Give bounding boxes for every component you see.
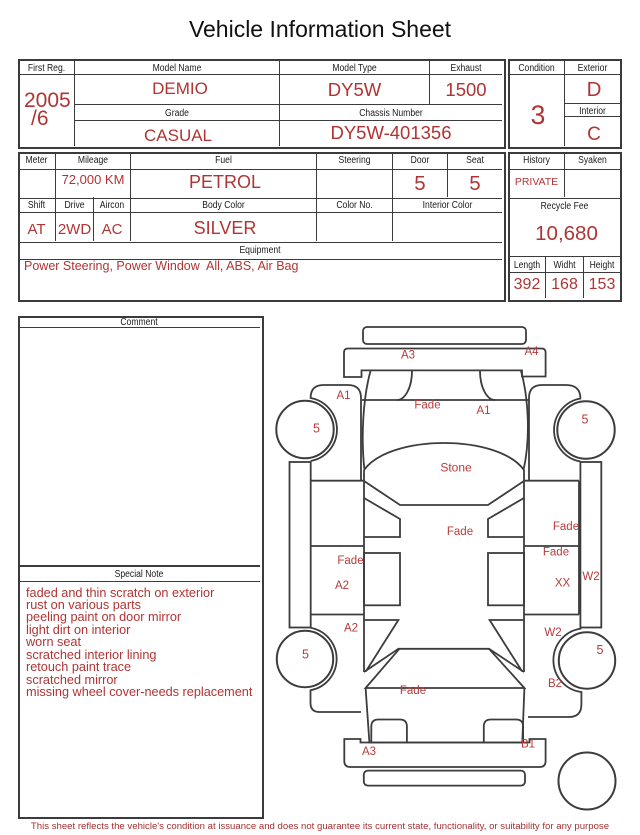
- svg-text:Stone: Stone: [440, 461, 472, 475]
- svg-text:B2: B2: [548, 678, 562, 690]
- svg-text:5: 5: [597, 643, 604, 657]
- svg-text:Fade: Fade: [543, 547, 569, 559]
- svg-text:A4: A4: [524, 346, 539, 358]
- svg-text:A3: A3: [362, 746, 376, 758]
- svg-text:5: 5: [582, 413, 589, 427]
- svg-text:A1: A1: [476, 405, 490, 417]
- svg-text:W2: W2: [582, 571, 599, 583]
- svg-text:A1: A1: [336, 390, 350, 402]
- svg-text:Fade: Fade: [400, 685, 426, 697]
- svg-text:5: 5: [302, 648, 309, 662]
- svg-text:B1: B1: [521, 739, 535, 751]
- svg-text:XX: XX: [555, 578, 571, 590]
- svg-text:A2: A2: [335, 580, 349, 592]
- svg-text:Fade: Fade: [337, 555, 363, 567]
- svg-text:A2: A2: [344, 623, 358, 635]
- svg-text:5: 5: [313, 422, 320, 436]
- svg-text:Fade: Fade: [447, 526, 473, 538]
- svg-text:A3: A3: [401, 350, 415, 362]
- svg-text:W2: W2: [544, 627, 561, 639]
- svg-text:Fade: Fade: [414, 400, 440, 412]
- svg-text:Fade: Fade: [553, 521, 579, 533]
